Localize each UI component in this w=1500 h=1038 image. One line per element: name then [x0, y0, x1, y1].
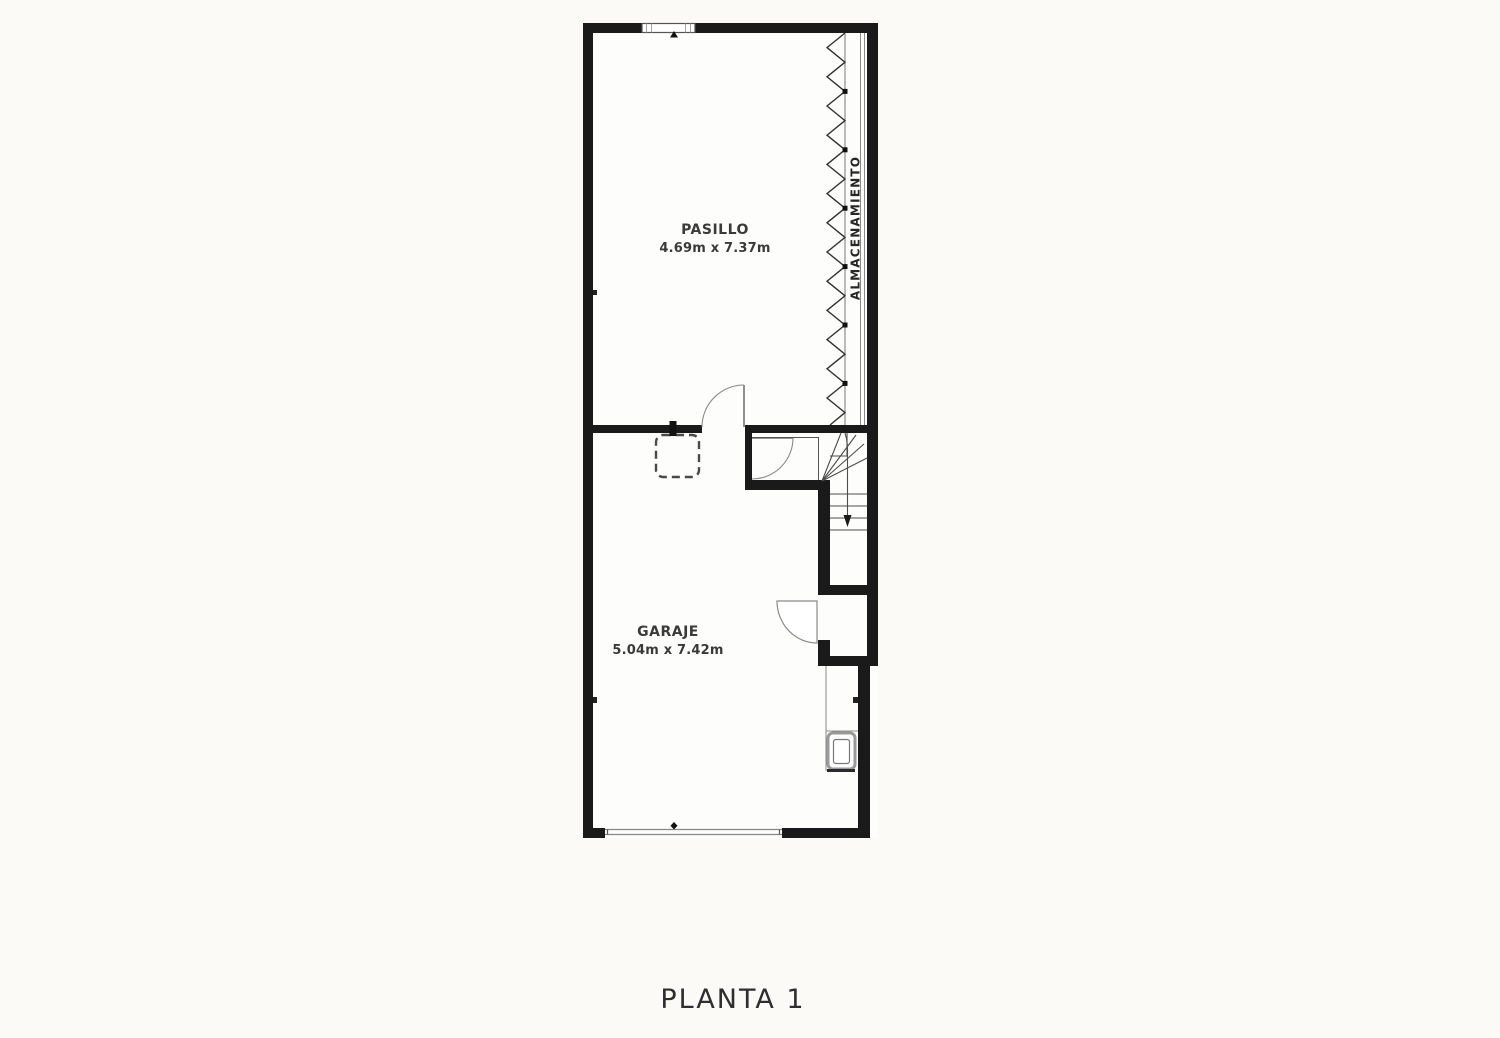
- bottom-wall-left-stub: [583, 828, 605, 838]
- stair-side-wall: [818, 480, 830, 595]
- closet-bottom-wall: [818, 656, 878, 666]
- right-wall-upper: [867, 23, 878, 666]
- top-wall-right-of-window: [695, 23, 878, 33]
- dividing-wall-left: [593, 425, 702, 433]
- closet-top-wall: [818, 585, 878, 595]
- bottom-wall-right: [782, 828, 870, 838]
- plan-title: PLANTA 1: [660, 984, 805, 1015]
- water-heater-inner: [834, 740, 850, 764]
- storage-label: ALMACENAMIENTO: [849, 156, 863, 300]
- right-wall-lower: [858, 656, 870, 838]
- pasillo-room-dimensions: 4.69m x 7.37m: [659, 241, 770, 256]
- tick-garage-left: [593, 697, 597, 703]
- tick-pasillo-left: [593, 290, 597, 295]
- pasillo-room-name: PASILLO: [681, 222, 749, 238]
- garaje-room-dimensions: 5.04m x 7.42m: [612, 643, 723, 658]
- tick-garage-right: [853, 697, 858, 703]
- dividing-wall-right: [745, 425, 867, 433]
- garaje-room-name: GARAJE: [637, 624, 699, 640]
- vestibule-bottom-wall: [745, 480, 830, 490]
- floor-plan-page: PASILLO 4.69m x 7.37m GARAJE 5.04m x 7.4…: [0, 0, 1500, 1038]
- left-wall: [583, 23, 593, 838]
- shaft-wall-tab: [670, 421, 677, 436]
- floor-plan-drawing: PASILLO 4.69m x 7.37m GARAJE 5.04m x 7.4…: [0, 0, 1500, 1038]
- window-frame: [642, 24, 695, 33]
